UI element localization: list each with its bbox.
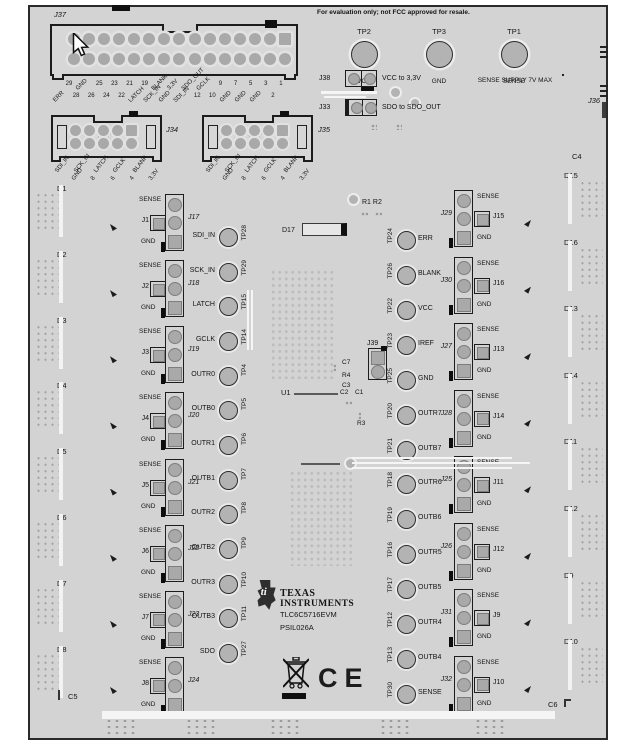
j37-pin <box>249 53 261 65</box>
signal-label: SCK_IN <box>157 267 215 275</box>
silk-bar <box>59 514 63 566</box>
j35-pin-label: 3,3V <box>299 168 307 178</box>
signal-label: OUTB3 <box>157 613 215 621</box>
sense-supply-note: SENSE SUPPLY 7V MAX <box>450 77 580 84</box>
c6-ref: C6 <box>548 701 558 709</box>
via-cluster <box>579 580 603 618</box>
signal-label: OUTR6 <box>418 479 442 487</box>
j36-ref: J36 <box>588 97 600 105</box>
via-cluster <box>35 653 60 691</box>
sense-label: SENSE <box>139 461 161 468</box>
j37-pin <box>98 33 110 45</box>
j35-pin <box>249 138 260 149</box>
sense-label: SENSE <box>139 527 161 534</box>
j37-pin <box>249 33 261 45</box>
testpoint-ref: TP17 <box>387 577 394 593</box>
edge-tick <box>600 90 608 92</box>
testpoint-row: TP12 OUTR4 <box>387 615 477 635</box>
mouse-cursor-icon <box>72 33 90 57</box>
testpoint-ref: TP10 <box>241 572 248 588</box>
j34-pin-labels: SDI_INGNDSCK_IN8LATCH6GCLK4BLANK3,3V <box>59 160 159 174</box>
signal-label: LATCH <box>157 301 215 309</box>
j37-pin-label: 29 <box>62 81 76 87</box>
tp2-ref: TP2 <box>357 27 371 36</box>
r3-ref: R3 <box>357 420 365 427</box>
testpoint-pad <box>397 580 416 599</box>
testpoint-row: TP30 SENSE <box>387 685 477 705</box>
jumper-ref: J16 <box>493 280 504 288</box>
via-cluster <box>185 718 219 734</box>
gnd-label: GND <box>477 500 491 507</box>
testpoint-row: TP18 OUTR6 <box>387 475 477 495</box>
assembly-number: PSIL026A <box>280 624 314 632</box>
testpoint-row: TP16 OUTR5 <box>387 545 477 565</box>
tp3-pad <box>426 41 453 68</box>
sense-label: SENSE <box>477 260 499 267</box>
silk-trace <box>324 96 366 98</box>
j37-pin <box>219 33 231 45</box>
via-cluster <box>579 180 603 218</box>
via-pair <box>371 124 377 130</box>
silk-bar <box>568 574 572 624</box>
via-cluster <box>105 718 139 734</box>
jumper-ref: J15 <box>493 213 504 221</box>
gnd-label: GND <box>477 367 491 374</box>
signal-label: GCLK <box>157 336 215 344</box>
jumper-ref: J5 <box>133 482 149 490</box>
signal-label: OUTB4 <box>418 654 441 662</box>
testpoint-ref: TP5 <box>241 398 248 410</box>
pads <box>345 401 352 405</box>
via-cluster <box>35 587 60 625</box>
j33-function: SDO to SDO_OUT <box>382 104 441 112</box>
j33-pin-cell <box>349 100 363 115</box>
testpoint-pad <box>397 371 416 390</box>
testpoint-ref: TP6 <box>241 433 248 445</box>
j34-pin <box>70 138 81 149</box>
j38-pin-cell <box>346 71 362 86</box>
testpoint-ref: TP24 <box>387 228 394 244</box>
testpoint-pad <box>397 266 416 285</box>
c1-ref: C1 <box>355 389 363 396</box>
j37-pin <box>204 53 216 65</box>
testpoint-pad <box>219 263 238 282</box>
polarity-arrow <box>524 619 531 626</box>
header-3pin <box>165 657 184 714</box>
signal-label: SDI_IN <box>157 232 215 240</box>
j37-pin-label: 2 <box>266 93 280 99</box>
signal-label: OUTB0 <box>157 405 215 413</box>
header-ref: J32 <box>432 676 452 684</box>
testpoint-pad <box>397 685 416 704</box>
c5-tick <box>58 690 60 700</box>
via-pair <box>396 124 402 130</box>
testpoint-row: TP17 OUTB5 <box>387 580 477 600</box>
j35-pin <box>277 125 288 136</box>
j37-pin <box>143 33 155 45</box>
edge-tick <box>600 95 608 97</box>
testpoint-row: GCLK TP14 <box>157 332 283 352</box>
j39-ref: J39 <box>367 340 378 348</box>
testpoint-row: OUTB3 TP11 <box>157 609 283 629</box>
r1-pads <box>361 212 368 216</box>
testpoint-row: TP19 OUTB6 <box>387 510 477 530</box>
testpoint-row: OUTB0 TP5 <box>157 401 283 421</box>
j37-pin-label: 23 <box>107 81 121 87</box>
pcb-assembly-drawing: For evaluation only; not FCC approved fo… <box>0 0 618 748</box>
j37-pin-label: 3 <box>259 81 273 87</box>
j35-pin <box>235 125 246 136</box>
signal-label: OUTB1 <box>157 475 215 483</box>
pcb-board-outline: For evaluation only; not FCC approved fo… <box>28 5 608 740</box>
via-cluster <box>35 192 60 230</box>
j35-pin-labels: SDI_INGNDSCK_IN8LATCH6GCLK4BLANK3,3V <box>210 160 310 174</box>
testpoint-ref: TP25 <box>387 368 394 384</box>
c7-ref: C7 <box>342 359 350 366</box>
signal-label: GND <box>418 375 434 383</box>
j37-pin-label: 21 <box>123 81 137 87</box>
j37-pin-label: 24 <box>99 93 113 99</box>
testpoint-ref: TP16 <box>387 542 394 558</box>
j34-pin <box>126 125 137 136</box>
edge-tick <box>600 46 608 48</box>
polarity-arrow <box>110 621 117 628</box>
silk-bar <box>568 307 572 357</box>
company-name-top: TEXAS <box>280 588 315 599</box>
jumper-ref: J10 <box>493 679 504 687</box>
testpoint-ref: TP9 <box>241 537 248 549</box>
testpoint-pad <box>397 231 416 250</box>
testpoint-row: TP26 BLANK <box>387 266 477 286</box>
gnd-label: GND <box>141 503 155 510</box>
jumper-ref: J14 <box>493 413 504 421</box>
jumper-ref: J13 <box>493 346 504 354</box>
j37-pin <box>189 53 201 65</box>
polarity-arrow <box>110 422 117 429</box>
j35-side-slot <box>297 125 307 149</box>
silk-dot <box>562 74 564 76</box>
testpoint-ref: TP12 <box>387 612 394 628</box>
j37-pin <box>173 33 185 45</box>
r2-pads <box>375 212 382 216</box>
d17-ref: D17 <box>282 227 295 235</box>
jumper-ref: J11 <box>493 479 504 487</box>
testpoint-pad <box>219 228 238 247</box>
testpoint-row: LATCH TP15 <box>157 297 283 317</box>
j35-pin1-marker <box>280 111 289 117</box>
testpoint-ref: TP19 <box>387 507 394 523</box>
sense-label: SENSE <box>477 326 499 333</box>
j37-pin <box>98 53 110 65</box>
testpoint-pad <box>219 401 238 420</box>
polarity-arrow <box>110 489 117 496</box>
testpoint-pad <box>219 332 238 351</box>
j38-function: VCC to 3,3V <box>382 75 421 83</box>
j37-pin-label: 10 <box>205 93 219 99</box>
j37-pin-label: 26 <box>84 93 98 99</box>
header-ref: J24 <box>188 677 199 685</box>
u1-outline <box>301 463 340 465</box>
silk-bar <box>568 507 572 557</box>
j34-keying-notch <box>93 115 123 123</box>
j37-foot <box>284 74 296 80</box>
header-ref: J17 <box>188 214 199 222</box>
silk-bar <box>59 448 63 500</box>
testpoint-row: SDI_IN TP28 <box>157 228 283 248</box>
j37-pin <box>264 33 276 45</box>
tp1-pad <box>501 41 528 68</box>
testpoint-pad <box>397 301 416 320</box>
u1-outline <box>294 393 338 395</box>
j37-pin <box>158 53 170 65</box>
board-fiducial-mark <box>112 5 130 11</box>
gnd-label: GND <box>141 635 155 642</box>
testpoint-ref: TP30 <box>387 682 394 698</box>
testpoint-ref: TP27 <box>241 641 248 657</box>
j34-pin <box>126 138 137 149</box>
part-number: TLC6C5716EVM <box>280 611 337 619</box>
j33-jumper <box>345 99 377 116</box>
c4-ref: C4 <box>572 153 582 161</box>
jumper-ref: J3 <box>133 349 149 357</box>
j37-pin <box>279 33 291 45</box>
via-cluster <box>35 455 60 493</box>
silk-bar <box>59 317 63 369</box>
testpoint-ref: TP20 <box>387 403 394 419</box>
via-cluster <box>579 313 603 351</box>
testpoint-row: OUTR0 TP4 <box>157 367 283 387</box>
testpoint-pad <box>219 436 238 455</box>
j37-pin <box>279 53 291 65</box>
gnd-label: GND <box>477 633 491 640</box>
svg-text:ti: ti <box>261 587 267 598</box>
j34-pin <box>70 125 81 136</box>
testpoint-row: TP22 VCC <box>387 301 477 321</box>
pin1-tick <box>449 637 453 647</box>
via-cluster <box>579 380 603 418</box>
testpoint-row: TP13 OUTB4 <box>387 650 477 670</box>
j34-pin1-marker <box>129 111 138 117</box>
silk-trace <box>251 290 253 350</box>
jumper-ref: J12 <box>493 546 504 554</box>
j34-pin-label: 8 <box>90 175 92 178</box>
testpoint-pad <box>219 540 238 559</box>
testpoint-row: SCK_IN TP29 <box>157 263 283 283</box>
testpoint-ref: TP4 <box>241 364 248 376</box>
silk-trace <box>247 290 249 350</box>
j37-keying-notch <box>162 24 198 33</box>
via-cluster <box>35 521 60 559</box>
signal-label: OUTR1 <box>157 440 215 448</box>
j37-pin <box>173 53 185 65</box>
gnd-label: GND <box>477 567 491 574</box>
j37-pin <box>264 53 276 65</box>
via-cluster <box>579 513 603 551</box>
signal-label: BLANK <box>418 270 441 278</box>
testpoint-row: OUTB1 TP7 <box>157 471 283 491</box>
j34-pin <box>84 125 95 136</box>
j37-ref: J37 <box>54 11 66 19</box>
testpoint-row: TP24 ERR <box>387 231 477 251</box>
r4-ref: R4 <box>342 372 350 379</box>
ce-mark: CE <box>318 663 370 694</box>
signal-label: OUTR2 <box>157 509 215 517</box>
signal-label: OUTR5 <box>418 549 442 557</box>
sense-label: SENSE <box>477 393 499 400</box>
j37-pin1-marker <box>265 20 277 28</box>
jumper-ref: J4 <box>133 415 149 423</box>
weee-bar <box>282 693 306 699</box>
sense-label: SENSE <box>139 196 161 203</box>
silk-bar <box>59 580 63 632</box>
signal-label: OUTB7 <box>418 445 441 453</box>
edge-tick <box>600 56 608 58</box>
testpoint-ref: TP8 <box>241 502 248 514</box>
j34-pin <box>112 138 123 149</box>
edge-tick <box>600 85 608 87</box>
sense-label: SENSE <box>477 659 499 666</box>
j37-pin-label: 28 <box>69 93 83 99</box>
d17-diode-body <box>302 223 347 236</box>
silk-trace <box>321 91 377 94</box>
testpoint-row: OUTB2 TP9 <box>157 540 283 560</box>
j35-pin <box>263 125 274 136</box>
via-cluster <box>379 718 413 734</box>
j37-pin-label: 9 <box>213 81 227 87</box>
j34-pin-label: GCLK <box>112 157 127 174</box>
signal-label: OUTB6 <box>418 514 441 522</box>
jumper-ref: J2 <box>133 283 149 291</box>
via-cluster <box>35 324 60 362</box>
j34-ref: J34 <box>166 126 178 134</box>
j37-pin-label: ERR <box>52 90 66 104</box>
polarity-arrow <box>524 686 531 693</box>
signal-label: OUTB5 <box>418 584 441 592</box>
testpoint-pad <box>397 406 416 425</box>
testpoint-ref: TP7 <box>241 468 248 480</box>
pads <box>333 364 336 371</box>
testpoint-pad <box>397 336 416 355</box>
silk-trace <box>352 457 512 459</box>
j34-connector: J34 <box>51 115 162 158</box>
signal-label: VCC <box>418 305 433 313</box>
tp2-pad <box>351 41 378 68</box>
signal-label: OUTR3 <box>157 579 215 587</box>
via-cluster <box>474 718 508 734</box>
via-cluster <box>35 258 60 296</box>
j37-pin <box>189 33 201 45</box>
testpoint-pad <box>397 650 416 669</box>
j37-pin-label: GND <box>75 78 89 92</box>
testpoint-ref: TP22 <box>387 298 394 314</box>
silk-bar <box>59 251 63 303</box>
sense-label: SENSE <box>477 526 499 533</box>
j37-pin-label: GCLK <box>196 78 210 92</box>
testpoint-pad <box>397 545 416 564</box>
gnd-label: GND <box>477 434 491 441</box>
jumper-2pin <box>150 678 166 694</box>
thermal-via-array <box>289 470 355 566</box>
j35-keying-notch <box>244 115 274 123</box>
j37-pin <box>143 53 155 65</box>
silk-bar <box>568 374 572 424</box>
jumper-2pin <box>474 211 490 227</box>
testpoint-row: OUTR2 TP8 <box>157 505 283 525</box>
via-cluster <box>269 718 303 734</box>
signal-label: ERR <box>418 235 433 243</box>
r1-r2-refs: R1 R2 <box>362 199 382 207</box>
gnd-label: GND <box>477 700 491 707</box>
j35-pin <box>263 138 274 149</box>
j34-side-slot <box>57 125 67 149</box>
polarity-arrow <box>110 555 117 562</box>
polarity-arrow <box>524 486 531 493</box>
polarity-arrow <box>524 220 531 227</box>
via <box>391 88 400 97</box>
j35-pin-label: 4 <box>280 175 282 178</box>
jumper-ref: J6 <box>133 548 149 556</box>
j35-ref: J35 <box>318 126 330 134</box>
j34-pin <box>98 125 109 136</box>
j34-pin <box>84 138 95 149</box>
j35-side-slot <box>208 125 218 149</box>
thermal-via-array <box>270 269 336 379</box>
via-cluster <box>35 389 60 427</box>
j37-pin <box>113 53 125 65</box>
j35-pin <box>221 138 232 149</box>
testpoint-row: TP20 OUTR7 <box>387 406 477 426</box>
silk-trace <box>352 467 512 469</box>
polarity-arrow <box>110 687 117 694</box>
c5-ref: C5 <box>68 693 78 701</box>
gnd-label: GND <box>141 569 155 576</box>
j35-pin <box>235 138 246 149</box>
signal-label: OUTB2 <box>157 544 215 552</box>
c6-tick <box>564 699 566 707</box>
j37-pin-label: 7 <box>229 81 243 87</box>
j37-pin <box>113 33 125 45</box>
testpoint-ref: TP29 <box>241 260 248 276</box>
j35-pin-label: 8 <box>241 175 243 178</box>
company-name-bottom: INSTRUMENTS <box>280 599 354 609</box>
silk-bar <box>59 185 63 237</box>
j37-pin <box>219 53 231 65</box>
polarity-arrow <box>524 353 531 360</box>
gnd-label: GND <box>141 370 155 377</box>
jumper-2pin <box>150 281 166 297</box>
testpoint-ref: TP18 <box>387 472 394 488</box>
silk-bar <box>568 241 572 291</box>
gnd-label: GND <box>477 234 491 241</box>
silk-bar <box>568 640 572 690</box>
testpoint-pad <box>219 609 238 628</box>
testpoint-pad <box>219 575 238 594</box>
gnd-label: GND <box>141 701 155 708</box>
j37-pin-label: 1 <box>274 81 288 87</box>
via-cluster <box>579 247 603 285</box>
j38-pin-cell <box>362 71 377 86</box>
j39-jumper <box>368 348 387 380</box>
edge-connector-mark <box>602 102 606 118</box>
j34-pin <box>112 125 123 136</box>
gnd-label: GND <box>141 238 155 245</box>
j38-ref: J38 <box>319 75 330 83</box>
testpoint-ref: TP11 <box>241 606 248 621</box>
signal-label: SENSE <box>418 689 442 697</box>
testpoint-pad <box>219 367 238 386</box>
via <box>349 195 358 204</box>
testpoint-ref: TP13 <box>387 647 394 663</box>
